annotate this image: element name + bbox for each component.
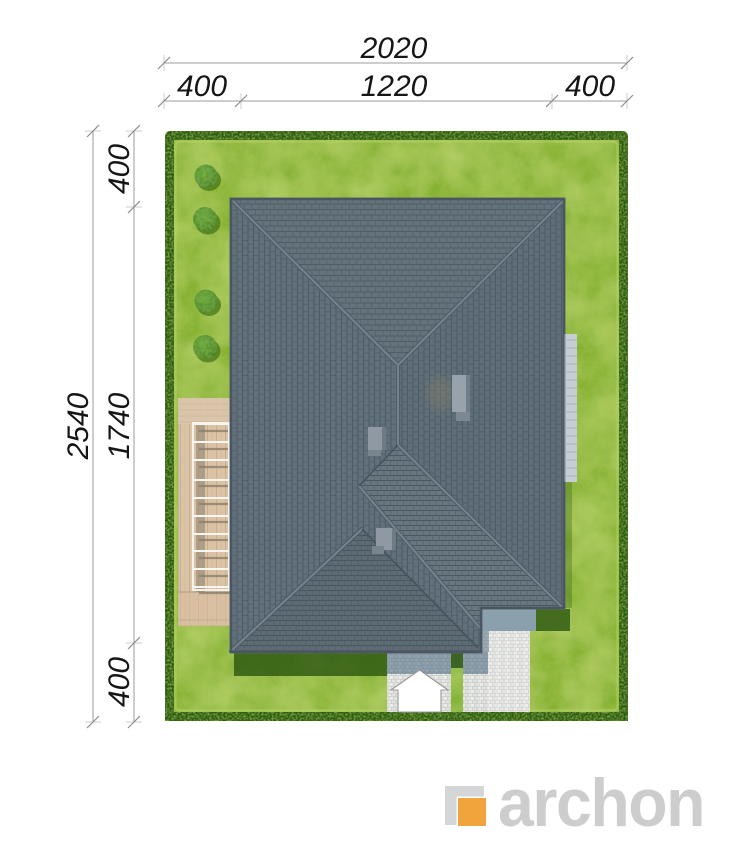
svg-text:archon: archon xyxy=(498,765,704,841)
svg-text:2020: 2020 xyxy=(360,32,428,65)
svg-text:2540: 2540 xyxy=(62,392,95,460)
svg-text:400: 400 xyxy=(177,70,227,103)
svg-text:400: 400 xyxy=(565,70,615,103)
svg-text:400: 400 xyxy=(103,657,136,707)
svg-text:400: 400 xyxy=(103,144,136,194)
svg-text:1220: 1220 xyxy=(361,70,428,103)
svg-text:1740: 1740 xyxy=(103,392,136,459)
